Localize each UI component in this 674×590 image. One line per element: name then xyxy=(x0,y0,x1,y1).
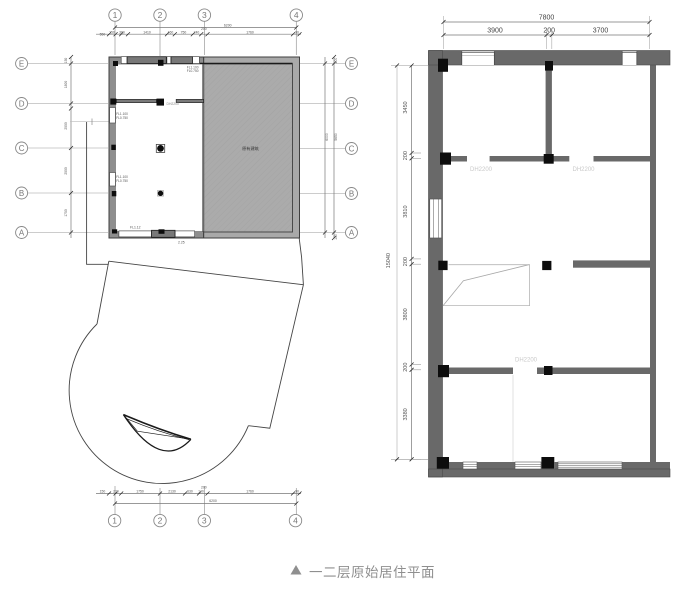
svg-text:DH2200: DH2200 xyxy=(572,167,595,173)
svg-text:B: B xyxy=(19,189,24,198)
svg-text:C: C xyxy=(349,144,355,153)
svg-text:630: 630 xyxy=(187,489,193,493)
svg-text:D: D xyxy=(349,99,355,108)
svg-text:3380: 3380 xyxy=(403,408,409,420)
svg-text:200: 200 xyxy=(403,151,409,160)
svg-text:15040: 15040 xyxy=(386,253,392,268)
svg-text:1760: 1760 xyxy=(246,489,254,493)
svg-text:1: 1 xyxy=(113,10,118,20)
svg-text:1: 1 xyxy=(112,516,117,526)
svg-text:200: 200 xyxy=(403,257,409,266)
svg-text:1750: 1750 xyxy=(136,489,144,493)
svg-text:2130: 2130 xyxy=(168,489,176,493)
svg-text:200: 200 xyxy=(403,363,409,372)
svg-text:4: 4 xyxy=(294,10,299,20)
svg-text:2000: 2000 xyxy=(64,122,68,130)
svg-text:1410: 1410 xyxy=(143,30,151,34)
svg-text:4: 4 xyxy=(293,516,298,526)
svg-text:200: 200 xyxy=(201,486,207,490)
svg-text:3800: 3800 xyxy=(403,308,409,320)
svg-text:150: 150 xyxy=(334,234,338,240)
svg-text:90: 90 xyxy=(295,30,299,34)
svg-text:5650: 5650 xyxy=(334,133,338,141)
svg-text:E: E xyxy=(19,59,24,68)
svg-text:750: 750 xyxy=(181,30,187,34)
svg-text:E: E xyxy=(349,59,354,68)
svg-text:3810: 3810 xyxy=(403,205,409,217)
svg-text:6200: 6200 xyxy=(224,23,232,27)
svg-text:3700: 3700 xyxy=(593,28,609,35)
svg-text:3900: 3900 xyxy=(487,28,503,35)
svg-text:7800: 7800 xyxy=(539,15,555,22)
svg-text:1760: 1760 xyxy=(246,30,254,34)
svg-text:240: 240 xyxy=(194,30,200,34)
svg-text:6200: 6200 xyxy=(209,499,217,503)
svg-text:DH2200: DH2200 xyxy=(167,102,180,106)
svg-text:150: 150 xyxy=(64,58,68,64)
svg-text:D: D xyxy=(19,99,25,108)
svg-text:B: B xyxy=(349,189,354,198)
svg-text:A: A xyxy=(349,228,355,237)
svg-text:2: 2 xyxy=(158,516,163,526)
svg-text:150: 150 xyxy=(100,489,106,493)
svg-text:3: 3 xyxy=(202,10,207,20)
svg-text:3450: 3450 xyxy=(403,101,409,113)
svg-text:1750: 1750 xyxy=(64,209,68,217)
svg-text:550: 550 xyxy=(100,33,106,37)
svg-text:2000: 2000 xyxy=(64,167,68,175)
svg-text:DH2200: DH2200 xyxy=(470,167,493,173)
svg-text:380: 380 xyxy=(119,30,125,34)
svg-text:200: 200 xyxy=(334,58,338,64)
svg-text:C: C xyxy=(19,144,25,153)
svg-text:460: 460 xyxy=(168,30,174,34)
svg-text:2: 2 xyxy=(158,10,163,20)
svg-text:90: 90 xyxy=(295,489,299,493)
svg-text:200: 200 xyxy=(543,28,555,35)
svg-text:1800: 1800 xyxy=(64,81,68,89)
svg-text:140: 140 xyxy=(198,489,204,493)
svg-text:FL1.12: FL1.12 xyxy=(130,226,141,230)
svg-text:200: 200 xyxy=(201,27,207,31)
svg-text:A: A xyxy=(19,228,25,237)
svg-text:3: 3 xyxy=(202,516,207,526)
svg-text:FL0.750: FL0.750 xyxy=(187,69,199,73)
svg-text:原有建筑: 原有建筑 xyxy=(242,145,260,152)
svg-text:230: 230 xyxy=(113,489,119,493)
svg-text:FL0.750: FL0.750 xyxy=(116,116,128,120)
svg-text:DH2200: DH2200 xyxy=(515,358,538,364)
svg-text:150: 150 xyxy=(109,30,115,34)
svg-text:FL0.750: FL0.750 xyxy=(116,179,128,183)
svg-text:6000: 6000 xyxy=(325,133,329,141)
svg-text:2.25: 2.25 xyxy=(178,241,185,245)
svg-text:一二层原始居住平面: 一二层原始居住平面 xyxy=(309,565,435,580)
